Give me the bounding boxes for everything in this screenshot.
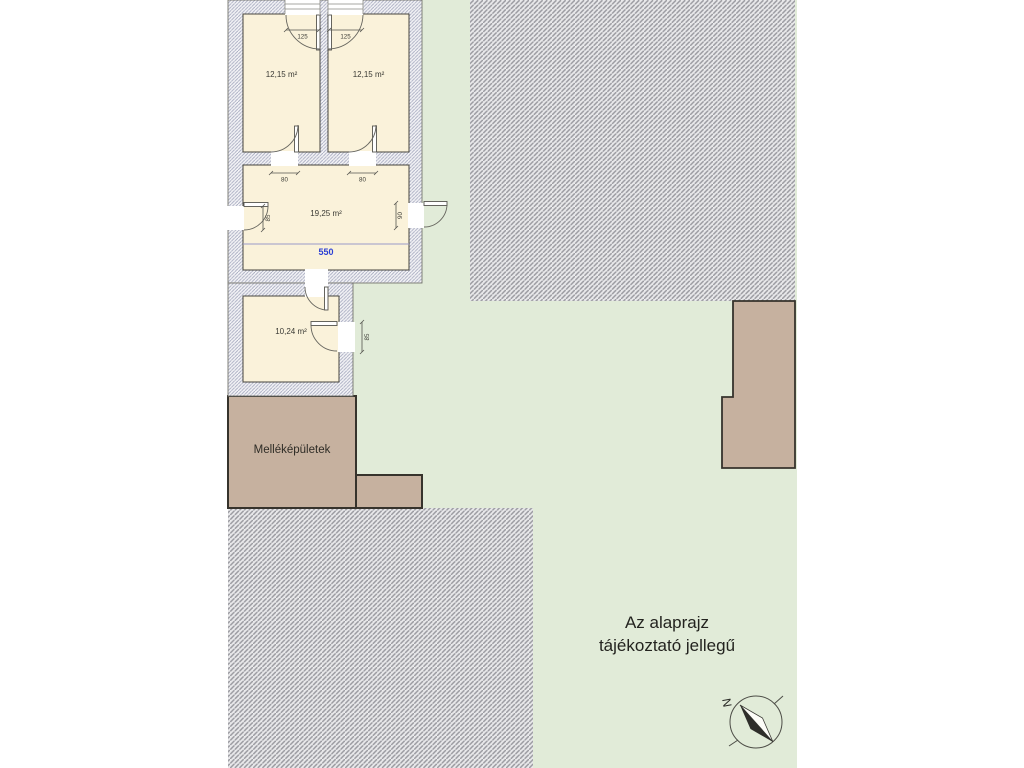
note-line-1: Az alaprajz <box>625 613 709 632</box>
room-area-label: 19,25 m² <box>310 209 342 218</box>
dimension-label: 80 <box>359 177 366 184</box>
outbuilding-right <box>722 301 795 468</box>
neighbor-building-top-right <box>470 0 795 301</box>
dimension-label: 90 <box>397 212 404 219</box>
room-top-left <box>243 14 320 152</box>
outbuilding-annex <box>356 475 422 508</box>
room-width-label: 550 <box>318 247 333 257</box>
room-area-label: 12,15 m² <box>353 70 385 79</box>
neighbor-building-bottom-left <box>228 508 533 768</box>
dimension-label: 125 <box>340 34 351 41</box>
dimension-label: 80 <box>281 177 288 184</box>
note-line-2: tájékoztató jellegű <box>599 636 735 655</box>
room-area-label: 10,24 m² <box>275 327 307 336</box>
dimension-label: 85 <box>265 214 272 221</box>
outbuilding-label: Melléképületek <box>254 444 331 456</box>
floor-plan-svg: 125 125 80 80 85 90 85 550 12,15 m² 12,1… <box>0 0 1024 768</box>
room-area-label: 12,15 m² <box>266 70 298 79</box>
dimension-label: 85 <box>364 333 371 340</box>
floor-plan-canvas: 125 125 80 80 85 90 85 550 12,15 m² 12,1… <box>0 0 1024 768</box>
dimension-label: 125 <box>297 34 308 41</box>
